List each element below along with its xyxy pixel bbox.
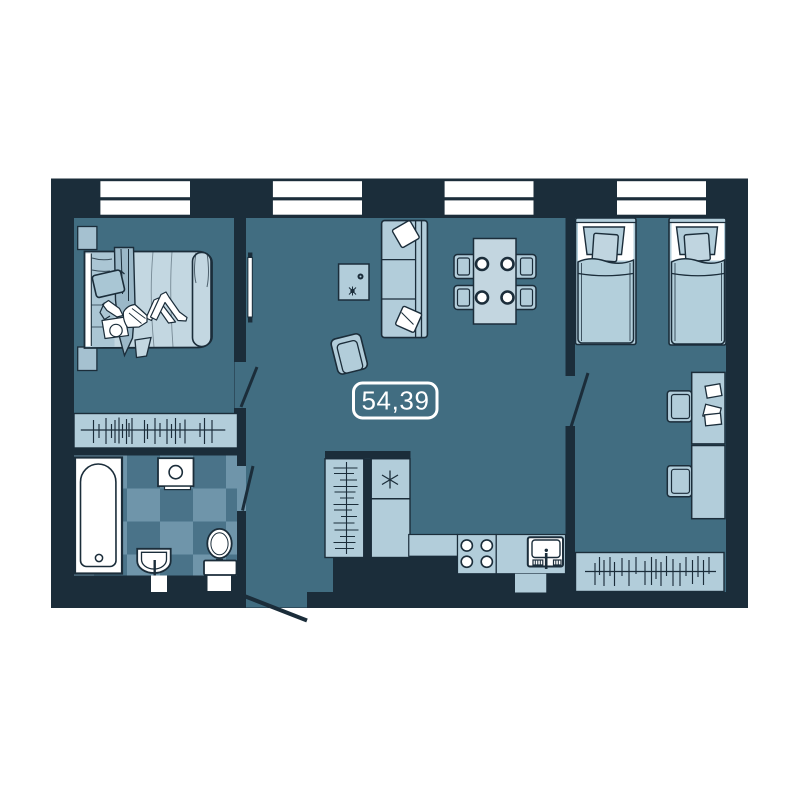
svg-text:54,39: 54,39 xyxy=(361,386,429,416)
